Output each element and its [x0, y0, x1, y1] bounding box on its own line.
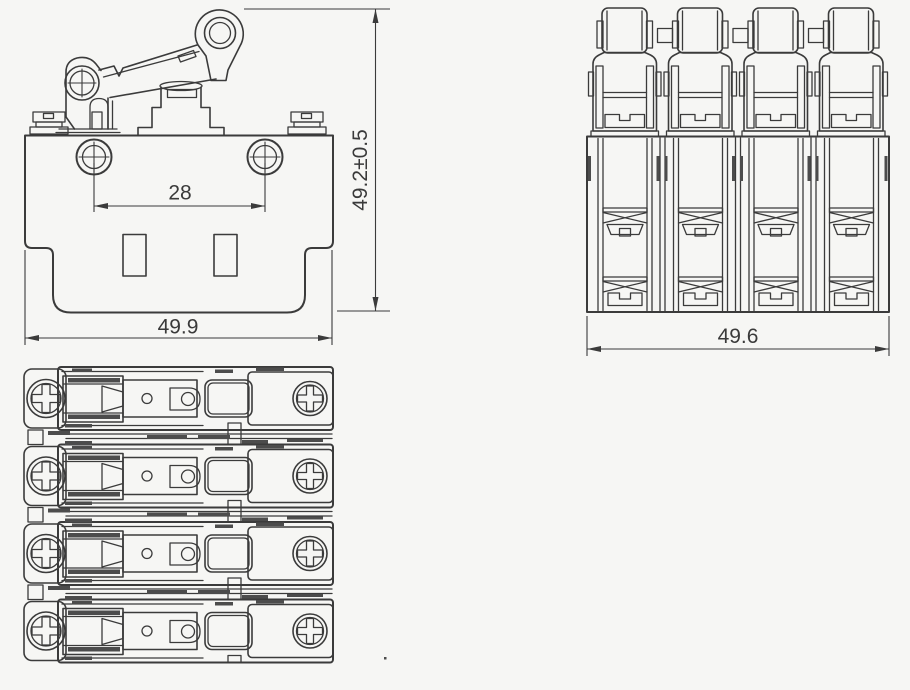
- top-switch-row-4: [24, 600, 333, 663]
- axle-rod-3: [809, 29, 824, 43]
- side-switch-unit-4: [815, 8, 888, 311]
- dim-label-front-width: 49.9: [158, 316, 199, 339]
- screw-boss-left: [30, 112, 68, 134]
- terminal-slot-left: [123, 235, 146, 277]
- dimension-front-width: 49.9: [25, 250, 332, 345]
- stray-mark: [384, 657, 387, 660]
- side-switch-unit-1: [589, 8, 662, 311]
- side-view-4-gang: 49.6: [587, 8, 889, 356]
- axle-rod-2: [733, 29, 748, 43]
- dim-label-hole-spacing: 28: [168, 182, 191, 205]
- side-switch-unit-3: [740, 8, 813, 311]
- dimension-side-width: 49.6: [587, 316, 889, 356]
- axle-stub-row-4: [228, 656, 241, 663]
- top-view-4-gang: [24, 367, 333, 663]
- top-switch-row-3: [24, 522, 333, 585]
- dimension-front-height: 49.2±0.5: [244, 9, 390, 311]
- front-view: 28 49.9 49.2±0.5: [25, 9, 390, 345]
- limit-switch-drawing: 28 49.9 49.2±0.5: [0, 0, 910, 690]
- plunger-tower: [138, 82, 224, 136]
- top-switch-row-1: [24, 367, 333, 430]
- screw-boss-right: [288, 112, 326, 134]
- dim-label-side-width: 49.6: [718, 325, 759, 348]
- top-switch-row-2: [24, 445, 333, 508]
- terminal-slot-right: [214, 235, 237, 277]
- dimension-hole-spacing: 28: [94, 163, 265, 212]
- roller-head: [195, 10, 243, 81]
- side-switch-unit-2: [664, 8, 737, 311]
- roller-lever-arm: [99, 45, 216, 98]
- dim-label-front-height: 49.2±0.5: [349, 129, 372, 211]
- axle-rod-1: [658, 29, 673, 43]
- technical-drawing-canvas: 28 49.9 49.2±0.5: [0, 0, 910, 690]
- switch-body-outline: [25, 136, 333, 313]
